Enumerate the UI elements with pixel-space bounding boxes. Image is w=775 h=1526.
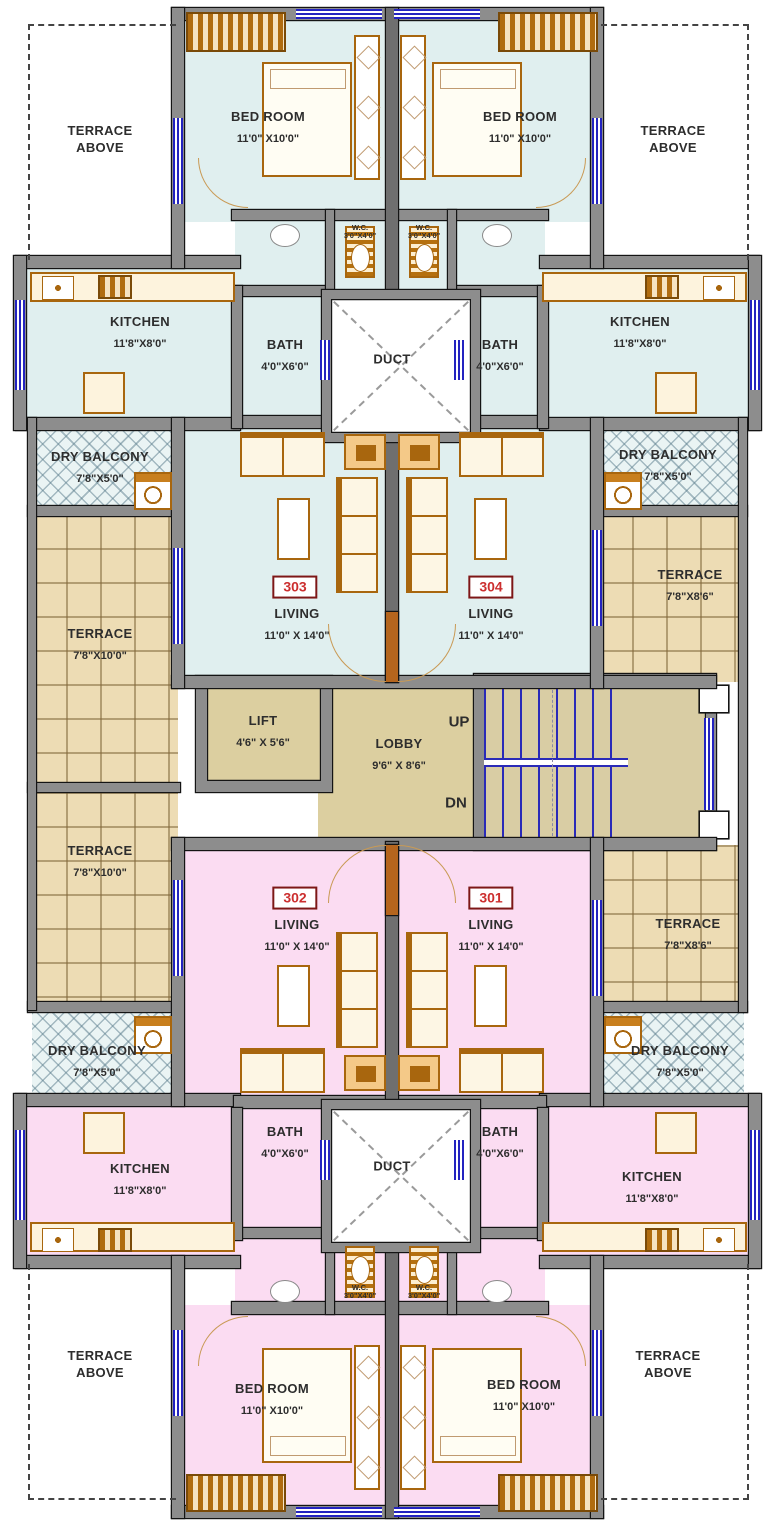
coffee-table-304 <box>474 498 507 560</box>
label-bath-301: BATH4'0"X6'0" <box>476 1122 523 1164</box>
label-terrace-304: TERRACE7'8"X8'6" <box>658 565 723 607</box>
stair-flight-up <box>484 684 628 758</box>
label-terrace-303: TERRACE7'8"X10'0" <box>68 624 133 666</box>
quilt-diamond <box>402 95 426 119</box>
sofa-3seat-304 <box>406 477 448 593</box>
kitchen-platform-303 <box>83 372 125 414</box>
toilet-bowl <box>351 244 370 272</box>
sink <box>42 1228 74 1252</box>
window-kitchen-upper-left <box>15 300 25 390</box>
wall-kitchen-bottom-upper-left <box>16 418 240 430</box>
label-kitchen-302: KITCHEN11'8"X8'0" <box>110 1159 170 1201</box>
door-leaf-upper-flats <box>386 612 398 682</box>
label-stairs-down: DN <box>445 793 467 813</box>
toilet-bowl <box>415 1256 434 1284</box>
vent-duct-upper-right <box>454 340 464 380</box>
label-kitchen-304: KITCHEN11'8"X8'0" <box>610 312 670 354</box>
tv-unit-301 <box>398 1055 440 1091</box>
wall-kitchen-bottom-upper-right <box>540 418 759 430</box>
quilt-diamond <box>402 45 426 69</box>
window-living-lower-right <box>592 900 602 996</box>
label-bedroom-302: BED ROOM11'0" X10'0" <box>235 1379 309 1421</box>
label-kitchen-301: KITCHEN11'8"X8'0" <box>622 1167 682 1209</box>
quilt-diamond <box>402 1405 426 1429</box>
tv <box>410 445 430 461</box>
parapet-terrace-right <box>739 418 747 1012</box>
window-kitchen-lower-right <box>750 1130 760 1220</box>
wardrobe-bedroom-301 <box>498 1474 598 1512</box>
duct-cross-icon <box>331 1109 471 1243</box>
stair-walk-line <box>552 690 553 836</box>
wall-bath-bottom-lower-left <box>234 1228 330 1238</box>
label-living-304: LIVING11'0" X 14'0" <box>458 604 523 646</box>
toilet-bowl <box>351 1256 370 1284</box>
label-wc-301: W.C.3'0"X4'0" <box>408 1284 440 1301</box>
label-wc-304: W.C.3'0"X4'0" <box>408 224 440 241</box>
sink <box>703 1228 735 1252</box>
kitchen-counter-301 <box>542 1222 747 1252</box>
kitchen-counter-303 <box>30 272 235 302</box>
label-living-302: LIVING11'0" X 14'0" <box>264 915 329 957</box>
label-bedroom-304: BED ROOM11'0" X10'0" <box>483 107 557 149</box>
window-kitchen-lower-left <box>15 1130 25 1220</box>
sofa-2seat-304 <box>459 432 544 477</box>
quilt-diamond <box>356 1355 380 1379</box>
vent-duct-lower-right <box>454 1140 464 1180</box>
quilt-diamond <box>402 145 426 169</box>
window-living-upper-left <box>173 548 183 644</box>
boundary-bottom-left <box>28 1264 176 1500</box>
kitchen-counter-302 <box>30 1222 235 1252</box>
pillow <box>440 69 516 89</box>
label-living-301: LIVING11'0" X 14'0" <box>458 915 523 957</box>
pillow <box>270 69 346 89</box>
unit-number-302: 302 <box>272 887 317 910</box>
wardrobe-bedroom-303 <box>186 12 286 52</box>
label-dry-balcony-304: DRY BALCONY7'8"X5'0" <box>619 445 717 487</box>
label-bedroom-301: BED ROOM11'0" X10'0" <box>487 1375 561 1417</box>
tv-unit-303 <box>344 434 386 470</box>
wall-drybalcony-top-lower-left <box>28 1002 180 1012</box>
quilt-strip-303 <box>354 35 380 180</box>
label-lift: LIFT4'6" X 5'6" <box>236 711 290 753</box>
wall-terrace-divider-left <box>28 783 180 792</box>
washbasin-302 <box>270 1280 300 1303</box>
label-lobby: LOBBY9'6" X 8'6" <box>372 734 426 776</box>
stove <box>98 275 132 299</box>
kitchen-platform-304 <box>655 372 697 414</box>
tv <box>410 1066 430 1082</box>
stove <box>98 1228 132 1252</box>
stove <box>645 1228 679 1252</box>
stair-column-bottom <box>700 812 728 838</box>
wall-bath-right-lower <box>538 1108 548 1240</box>
kitchen-platform-301 <box>655 1112 697 1154</box>
stair-column-top <box>700 686 728 712</box>
parapet-terrace-left <box>28 418 36 1010</box>
label-bath-303: BATH4'0"X6'0" <box>261 335 308 377</box>
sofa-2seat-302 <box>240 1048 325 1093</box>
label-bath-302: BATH4'0"X6'0" <box>261 1122 308 1164</box>
window-kitchen-upper-right <box>750 300 760 390</box>
label-bath-304: BATH4'0"X6'0" <box>476 335 523 377</box>
quilt-diamond <box>356 145 380 169</box>
label-terrace-301: TERRACE7'8"X8'6" <box>656 914 721 956</box>
label-living-303: LIVING11'0" X 14'0" <box>264 604 329 646</box>
label-terrace-above-br: TERRACEABOVE <box>636 1348 701 1382</box>
wall-center-upper <box>386 8 398 292</box>
quilt-diamond <box>402 1355 426 1379</box>
wall-kitchen-top-lower-right <box>540 1094 759 1106</box>
wall-lobby-bottom <box>172 838 716 850</box>
label-stairs-up: UP <box>449 712 470 732</box>
boundary-bottom-right <box>601 1264 749 1500</box>
label-bedroom-303: BED ROOM11'0" X10'0" <box>231 107 305 149</box>
window-top-right <box>394 9 480 19</box>
wall-bath-top-upper-left <box>234 286 330 296</box>
quilt-diamond <box>356 45 380 69</box>
wall-kitchen-top-lower-left <box>16 1094 240 1106</box>
wall-drybalcony-top-lower-right <box>598 1002 747 1012</box>
wall-center-lower <box>386 1232 398 1518</box>
pillow <box>440 1436 516 1456</box>
lift-below-gap <box>196 794 318 838</box>
label-wc-303: W.C.3'0"X4'0" <box>344 224 376 241</box>
quilt-strip-302 <box>354 1345 380 1490</box>
window-living-upper-right <box>592 530 602 626</box>
quilt-strip-304 <box>400 35 426 180</box>
quilt-strip-301 <box>400 1345 426 1490</box>
door-leaf-lower-flats <box>386 845 398 915</box>
label-dry-balcony-301: DRY BALCONY7'8"X5'0" <box>631 1041 729 1083</box>
quilt-diamond <box>402 1455 426 1479</box>
unit-number-303: 303 <box>272 576 317 599</box>
washbasin-304 <box>482 224 512 247</box>
unit-number-304: 304 <box>468 576 513 599</box>
sofa-2seat-303 <box>240 432 325 477</box>
coffee-table-301 <box>474 965 507 1027</box>
coffee-table-303 <box>277 498 310 560</box>
washbasin-301 <box>482 1280 512 1303</box>
label-duct-upper: DUCT <box>373 352 410 369</box>
label-dry-balcony-303: DRY BALCONY7'8"X5'0" <box>51 447 149 489</box>
terrace-302 <box>32 792 178 1006</box>
wall-wc-partition-upper-right <box>448 210 456 296</box>
tv-unit-302 <box>344 1055 386 1091</box>
sofa-3seat-303 <box>336 477 378 593</box>
label-terrace-above-bl: TERRACEABOVE <box>68 1348 133 1382</box>
quilt-diamond <box>356 1455 380 1479</box>
sink <box>703 276 735 300</box>
tv <box>356 445 376 461</box>
wall-wc-partition-upper-left <box>326 210 334 296</box>
stair-mid-landing-line <box>484 758 628 767</box>
window-top-left <box>296 9 382 19</box>
window-living-lower-left <box>173 880 183 976</box>
wardrobe-bedroom-302 <box>186 1474 286 1512</box>
wall-bath-left-lower <box>232 1108 242 1240</box>
tv-unit-304 <box>398 434 440 470</box>
label-kitchen-303: KITCHEN11'8"X8'0" <box>110 312 170 354</box>
window-stair-landing <box>704 718 714 810</box>
pillow <box>270 1436 346 1456</box>
stove <box>645 275 679 299</box>
wall-bath-right-upper <box>538 286 548 428</box>
wall-bath-left-upper <box>232 286 242 428</box>
label-duct-lower: DUCT <box>373 1159 410 1176</box>
window-bottom-right <box>394 1507 480 1517</box>
toilet-bowl <box>415 244 434 272</box>
quilt-diamond <box>356 1405 380 1429</box>
washbasin-303 <box>270 224 300 247</box>
kitchen-platform-302 <box>83 1112 125 1154</box>
vent-duct-lower-left <box>320 1140 330 1180</box>
sink <box>42 276 74 300</box>
floor-plan: TERRACEABOVE TERRACEABOVE TERRACEABOVE T… <box>0 0 775 1526</box>
coffee-table-302 <box>277 965 310 1027</box>
label-wc-302: W.C.3'0"X4'0" <box>344 1284 376 1301</box>
window-bottom-left <box>296 1507 382 1517</box>
label-terrace-302: TERRACE7'8"X10'0" <box>68 841 133 883</box>
unit-number-301: 301 <box>468 887 513 910</box>
vent-duct-upper-left <box>320 340 330 380</box>
tv <box>356 1066 376 1082</box>
wall-lobby-top <box>172 676 716 688</box>
label-dry-balcony-302: DRY BALCONY7'8"X5'0" <box>48 1041 146 1083</box>
wardrobe-bedroom-304 <box>498 12 598 52</box>
stair-flight-down <box>484 767 628 840</box>
label-terrace-above-tr: TERRACEABOVE <box>641 123 706 157</box>
sofa-3seat-302 <box>336 932 378 1048</box>
sofa-2seat-301 <box>459 1048 544 1093</box>
label-terrace-above-tl: TERRACEABOVE <box>68 123 133 157</box>
quilt-diamond <box>356 95 380 119</box>
sofa-3seat-301 <box>406 932 448 1048</box>
kitchen-counter-304 <box>542 272 747 302</box>
